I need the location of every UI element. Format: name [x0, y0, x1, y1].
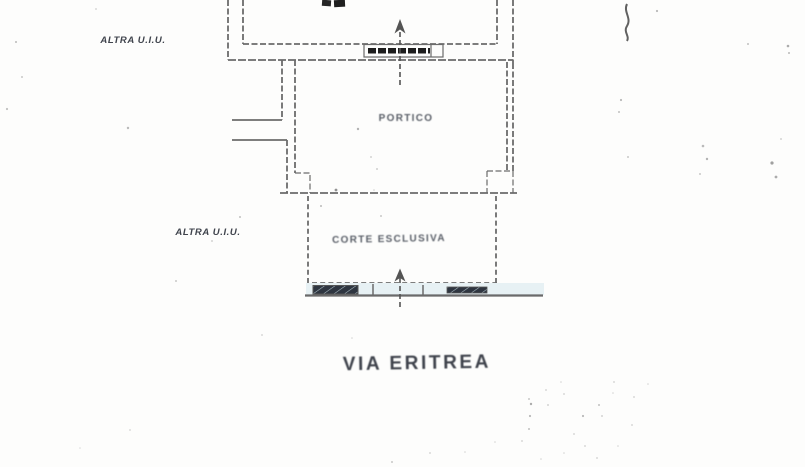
label-exclusive-court: CORTE ESCLUSIVA — [332, 233, 446, 246]
entrance-threshold — [364, 45, 443, 58]
boundary-fence — [306, 283, 544, 296]
scanned-floor-plan-page: ALTRA U.I.U. ALTRA U.I.U. PORTICO CORTE … — [0, 0, 805, 467]
scan-smudge — [626, 4, 629, 41]
label-street-name: VIA ERITREA — [343, 352, 492, 376]
portico-walls — [232, 60, 517, 193]
label-adjacent-unit-top: ALTRA U.I.U. — [99, 35, 165, 46]
label-portico: PORTICO — [379, 113, 434, 124]
label-adjacent-unit-side: ALTRA U.I.U. — [174, 227, 240, 238]
fence-hatch-left — [313, 286, 358, 295]
fence-hatch-right — [447, 287, 487, 293]
floor-plan-drawing: ALTRA U.I.U. ALTRA U.I.U. PORTICO CORTE … — [0, 0, 805, 467]
cutoff-ink-mark — [322, 0, 345, 7]
